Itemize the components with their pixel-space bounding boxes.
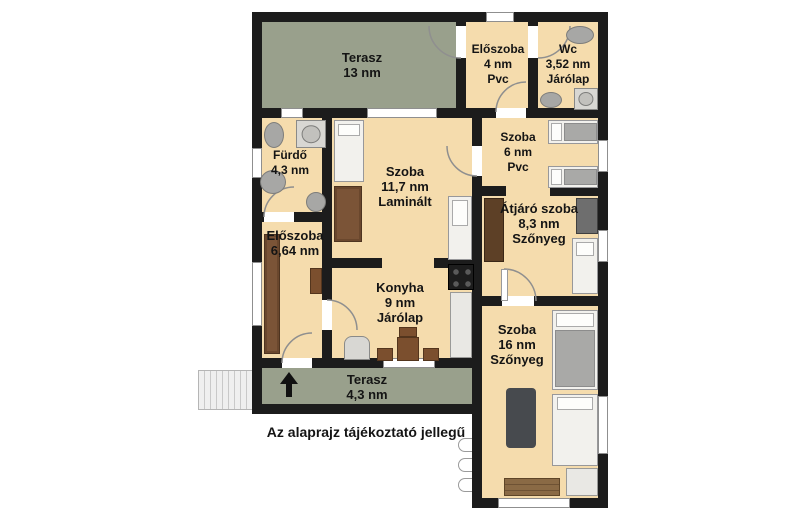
wall-terrace-bottom (252, 404, 482, 414)
room-floor: Szőnyeg (490, 352, 543, 367)
door-gap (282, 358, 312, 368)
cabinet-icon (310, 268, 322, 294)
washing-machine-icon (296, 120, 326, 148)
label-wc: Wc 3,52 nm Járólap (546, 42, 591, 87)
room-name: Szoba (500, 130, 535, 145)
room-floor: Szőnyeg (500, 231, 578, 246)
bed-icon (334, 120, 364, 182)
toilet-icon (540, 92, 562, 108)
wall-seg (252, 108, 281, 118)
label-szoba-6: Szoba 6 nm Pvc (500, 130, 535, 175)
label-terasz-4-3: Terasz 4,3 nm (346, 372, 387, 402)
label-terasz-13: Terasz 13 nm (342, 50, 382, 80)
room-area: 11,7 nm (378, 179, 431, 194)
entrance-arrow-icon (280, 372, 298, 398)
wall-top (252, 12, 608, 22)
rug-icon (506, 388, 536, 448)
radiator-icon (458, 478, 472, 492)
label-eloszoba-4: Előszoba 4 nm Pvc (472, 42, 525, 87)
room-area: 4,3 nm (271, 163, 309, 178)
wall-seg (472, 176, 482, 508)
room-name: Szoba (378, 164, 431, 179)
shelf-icon (576, 198, 598, 234)
chair-icon (423, 348, 439, 361)
room-name: Terasz (342, 50, 382, 65)
wall-seg (303, 108, 367, 118)
radiator-icon (458, 438, 472, 452)
door-gap (456, 26, 466, 58)
room-area: 8,3 nm (500, 216, 578, 231)
room-name: Wc (546, 42, 591, 57)
room-area: 9 nm (376, 295, 424, 310)
chair-icon (399, 327, 417, 337)
room-floor: Pvc (500, 160, 535, 175)
room-name: Előszoba (472, 42, 525, 57)
room-area: 3,52 nm (546, 57, 591, 72)
room-floor: Járólap (546, 72, 591, 87)
window-icon (498, 498, 570, 508)
room-area: 16 nm (490, 337, 543, 352)
window-icon (486, 12, 514, 22)
wall-seg (294, 212, 332, 222)
room-area: 6 nm (500, 145, 535, 160)
label-eloszoba-6-64: Előszoba 6,64 nm (266, 228, 323, 258)
wall-seg (482, 296, 502, 306)
table-icon (397, 337, 419, 361)
sofa-icon (572, 238, 598, 294)
room-name: Konyha (376, 280, 424, 295)
door-gap (496, 108, 526, 118)
door-gap (322, 300, 332, 330)
chair-icon (377, 348, 393, 361)
door-gap (472, 146, 482, 176)
window-icon (598, 396, 608, 454)
fridge-icon (344, 336, 370, 360)
toilet-icon (264, 122, 284, 148)
bed-icon (552, 394, 598, 466)
room-name: Átjáró szoba (500, 201, 578, 216)
door-gap (264, 212, 294, 222)
floor-plan: Terasz 13 nm Előszoba 4 nm Pvc Wc 3,52 n… (0, 0, 800, 515)
label-atjaro-szoba: Átjáró szoba 8,3 nm Szőnyeg (500, 201, 578, 246)
room-name: Előszoba (266, 228, 323, 243)
wall-seg (252, 212, 264, 222)
label-szoba-16: Szoba 16 nm Szőnyeg (490, 322, 543, 367)
room-area: 13 nm (342, 65, 382, 80)
label-szoba-11-7: Szoba 11,7 nm Laminált (378, 164, 431, 209)
room-floor: Laminált (378, 194, 431, 209)
stove-icon (448, 264, 474, 290)
window-icon (281, 108, 303, 118)
bed-icon (548, 120, 598, 144)
room-area: 6,64 nm (266, 243, 323, 258)
wall-seg (435, 358, 482, 368)
dresser-icon (504, 478, 560, 496)
room-name: Fürdő (271, 148, 309, 163)
room-name: Szoba (490, 322, 543, 337)
wall-seg (528, 58, 538, 108)
wall-seg (482, 186, 506, 196)
wall-seg (472, 118, 482, 146)
wall-seg (437, 108, 496, 118)
room-area: 4 nm (472, 57, 525, 72)
wall-seg (332, 258, 382, 268)
kitchen-counter-icon (450, 292, 472, 358)
window-icon (252, 148, 262, 178)
door-gap (528, 26, 538, 58)
window-icon (598, 140, 608, 172)
room-area: 4,3 nm (346, 387, 387, 402)
bed-icon (548, 166, 598, 188)
window-icon (252, 262, 262, 326)
room-floor: Pvc (472, 72, 525, 87)
wall-seg (322, 330, 332, 358)
plan-caption: Az alaprajz tájékoztató jellegű (267, 424, 465, 440)
window-icon (598, 230, 608, 262)
room-name: Terasz (346, 372, 387, 387)
window-icon (367, 108, 437, 118)
wardrobe-icon (334, 186, 362, 242)
radiator-icon (458, 458, 472, 472)
label-furdo: Fürdő 4,3 nm (271, 148, 309, 178)
nightstand-icon (566, 468, 598, 496)
room-floor: Járólap (376, 310, 424, 325)
stairs-icon (198, 370, 254, 410)
door-leaf (501, 269, 508, 301)
wall-seg (456, 58, 466, 108)
label-konyha: Konyha 9 nm Járólap (376, 280, 424, 325)
sink-cabinet-icon (574, 88, 598, 110)
sink-icon (306, 192, 326, 212)
wall-seg (252, 358, 282, 368)
wall-seg (534, 296, 608, 306)
bed-icon (552, 310, 598, 390)
sofa-icon (448, 196, 472, 260)
